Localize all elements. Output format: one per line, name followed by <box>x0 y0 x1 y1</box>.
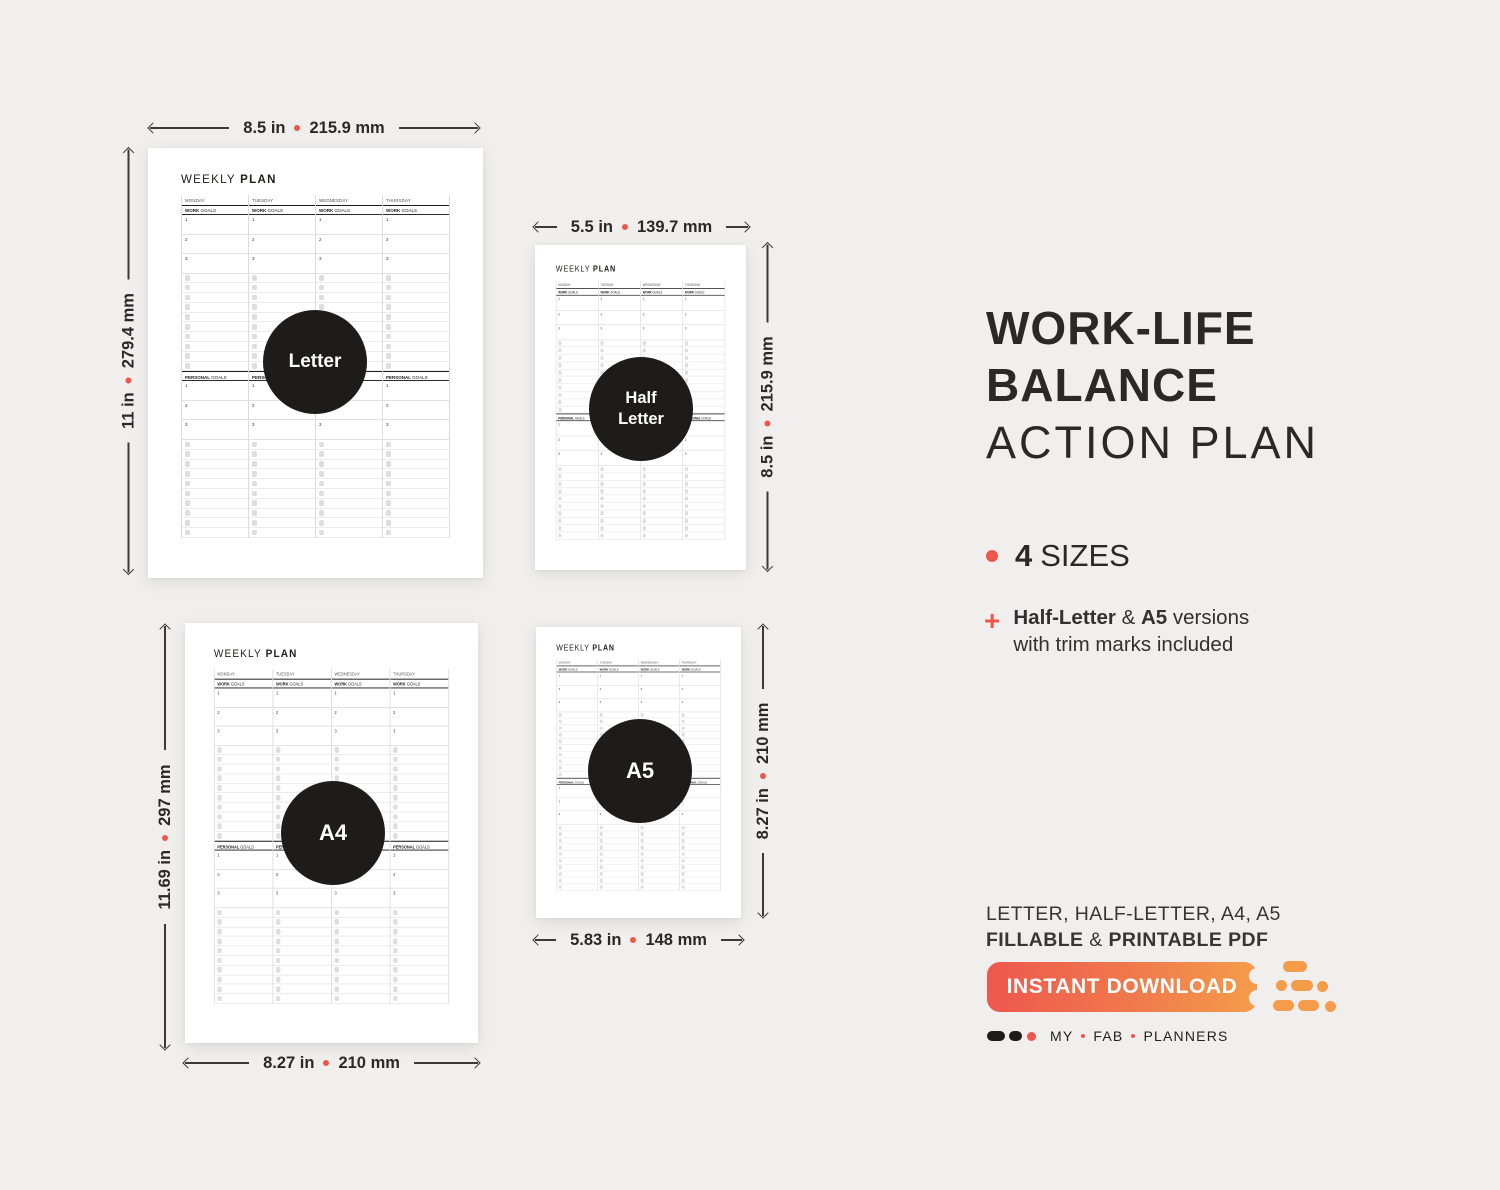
checkbox-icon <box>185 324 191 330</box>
planner-checklist-row <box>599 525 641 532</box>
planner-checklist-row <box>215 985 273 995</box>
planner-checklist-row <box>556 525 598 532</box>
planner-section-header-rest: GOALS <box>211 375 227 380</box>
checkbox-icon <box>252 510 258 516</box>
checkbox-icon <box>600 363 604 367</box>
planner-checklist-row <box>680 825 720 832</box>
checkbox-icon <box>185 285 191 291</box>
planner-section-header-bold: WORK <box>641 668 650 671</box>
planner-section-header: WORK GOALS <box>316 205 382 215</box>
checkbox-icon <box>558 489 562 493</box>
checkbox-icon <box>599 872 602 876</box>
checkbox-icon <box>319 510 325 516</box>
dot-separator-icon <box>323 1060 329 1066</box>
checkbox-icon <box>386 295 392 301</box>
planner-checklist-row <box>641 340 683 347</box>
planner-checklist-row <box>215 765 273 775</box>
planner-checklist-row <box>182 440 248 450</box>
checkbox-icon <box>558 766 561 770</box>
checkbox-icon <box>642 496 646 500</box>
checkbox-icon <box>252 324 258 330</box>
checkbox-icon <box>642 534 646 538</box>
checkbox-icon <box>185 295 191 301</box>
planner-checklist-row <box>557 831 597 838</box>
planner-checklist-row <box>332 946 390 956</box>
arrow-up-icon <box>767 245 769 323</box>
checkbox-icon <box>185 353 191 359</box>
size-badge-a5: A5 <box>588 719 692 823</box>
planner-checklist-row <box>556 369 598 376</box>
checkbox-icon <box>185 334 191 340</box>
planner-section-header-rest: GOALS <box>335 208 351 213</box>
planner-section-header-rest: GOALS <box>290 682 304 687</box>
checkbox-icon <box>558 341 562 345</box>
planner-checklist-row <box>683 362 725 369</box>
dimension-a4-width: 8.27 in 210 mm <box>185 1048 478 1078</box>
planner-checklist-row <box>182 322 248 332</box>
planner-checklist-row <box>599 488 641 495</box>
planner-checklist-row <box>641 495 683 502</box>
checkbox-icon <box>640 846 643 850</box>
checkbox-icon <box>558 773 561 777</box>
planner-goal-row: 1 <box>215 851 273 870</box>
planner-goal-row: 1 <box>599 296 641 311</box>
checkbox-icon <box>252 481 258 487</box>
planner-section-header: WORK GOALS <box>556 288 598 296</box>
planner-checklist-row <box>391 803 449 813</box>
planner-section-header: WORK GOALS <box>683 288 725 296</box>
planner-checklist-row <box>598 871 638 878</box>
planner-section-header: PERSONAL GOALS <box>215 841 273 851</box>
brand-word: MY <box>1050 1028 1073 1044</box>
arrow-up-icon <box>164 626 166 750</box>
planner-checklist-row <box>641 525 683 532</box>
planner-checklist-row <box>383 469 449 479</box>
checkbox-icon <box>386 481 392 487</box>
planner-checklist-row <box>680 851 720 858</box>
formats-info: LETTER, HALF-LETTER, A4, A5 FILLABLE & P… <box>986 901 1281 953</box>
checkbox-icon <box>681 879 684 883</box>
planner-goal-row: 3 <box>215 727 273 746</box>
planner-checklist-row <box>182 352 248 362</box>
planner-goal-row: 3 <box>383 420 449 440</box>
dot-separator-icon <box>760 773 766 779</box>
checkbox-icon <box>319 520 325 526</box>
planner-checklist-row <box>215 966 273 976</box>
checkbox-icon <box>334 996 339 1001</box>
checkbox-icon <box>319 295 325 301</box>
checkbox-icon <box>640 859 643 863</box>
planner-goal-row: 3 <box>249 254 315 274</box>
checkbox-icon <box>334 747 339 752</box>
dot-separator-icon <box>622 224 628 230</box>
planner-checklist-row <box>391 774 449 784</box>
planner-checklist-row <box>557 871 597 878</box>
planner-goal-row: 2 <box>680 798 720 811</box>
checkbox-icon <box>334 986 339 991</box>
planner-checklist-row <box>557 712 597 719</box>
planner-checklist-row <box>332 937 390 947</box>
planner-checklist-row <box>383 450 449 460</box>
checkbox-icon <box>558 865 561 869</box>
planner-goal-row: 2 <box>683 436 725 451</box>
planner-checklist-row <box>215 946 273 956</box>
checkbox-icon <box>252 471 258 477</box>
planner-section-header-rest: GOALS <box>698 780 707 783</box>
checkbox-icon <box>334 910 339 915</box>
planner-checklist-row <box>641 488 683 495</box>
checkbox-icon <box>685 504 689 508</box>
planner-goal-row: 1 <box>383 215 449 235</box>
checkbox-icon <box>386 471 392 477</box>
checkbox-icon <box>558 496 562 500</box>
planner-section-header-rest: GOALS <box>568 668 577 671</box>
dimension-half-letter-width: 5.5 in 139.7 mm <box>535 212 748 242</box>
planner-checklist-row <box>683 466 725 473</box>
checkbox-icon <box>681 713 684 717</box>
checkbox-icon <box>642 504 646 508</box>
feature-text: Half-Letter & A5 versions with trim mark… <box>1013 604 1249 658</box>
checkbox-icon <box>252 334 258 340</box>
planner-day-label: WEDNESDAY <box>639 659 679 666</box>
feature-line-2: with trim marks included <box>1013 631 1249 658</box>
planner-day-label: TUESDAY <box>273 669 331 679</box>
checkbox-icon <box>217 757 222 762</box>
checkbox-icon <box>681 865 684 869</box>
checkbox-icon <box>681 839 684 843</box>
planner-checklist-row <box>383 322 449 332</box>
planner-checklist-row <box>215 755 273 765</box>
checkbox-icon <box>600 496 604 500</box>
planner-checklist-row <box>680 712 720 719</box>
planner-checklist-row <box>249 450 315 460</box>
checkbox-icon <box>685 489 689 493</box>
planner-checklist-row <box>391 946 449 956</box>
planner-goal-row: 2 <box>683 310 725 325</box>
checkbox-icon <box>276 785 281 790</box>
planner-goal-row: 3 <box>680 699 720 712</box>
planner-checklist-row <box>599 340 641 347</box>
planner-checklist-row <box>641 510 683 517</box>
checkbox-icon <box>558 746 561 750</box>
checkbox-icon <box>642 511 646 515</box>
planner-day-label: WEDNESDAY <box>316 195 382 205</box>
planner-checklist-row <box>273 994 331 1004</box>
checkbox-icon <box>558 713 561 717</box>
planner-section-header-rest: GOALS <box>407 682 421 687</box>
checkbox-icon <box>640 852 643 856</box>
planner-checklist-row <box>182 342 248 352</box>
checkbox-icon <box>685 356 689 360</box>
planner-checklist-row <box>391 975 449 985</box>
planner-goal-row: 3 <box>273 889 331 908</box>
planner-checklist-row <box>215 803 273 813</box>
arrow-right-icon <box>726 226 748 228</box>
checkbox-icon <box>558 839 561 843</box>
planner-checklist-row <box>316 274 382 284</box>
checkbox-icon <box>640 879 643 883</box>
checkbox-icon <box>252 461 258 467</box>
planner-checklist-row <box>383 342 449 352</box>
checkbox-icon <box>558 467 562 471</box>
planner-checklist-row <box>598 825 638 832</box>
checkbox-icon <box>334 977 339 982</box>
checkbox-icon <box>681 846 684 850</box>
planner-checklist-row <box>316 518 382 528</box>
checkbox-icon <box>185 451 191 457</box>
arrow-up-icon <box>128 149 130 279</box>
planner-checklist-row <box>215 746 273 756</box>
planner-goal-row: 3 <box>557 699 597 712</box>
planner-checklist-row <box>599 480 641 487</box>
planner-goal-row: 2 <box>215 707 273 726</box>
planner-checklist-row <box>680 858 720 865</box>
dimension-inches: 8.5 in <box>758 436 777 478</box>
planner-checklist-row <box>556 532 598 539</box>
planner-goal-row: 1 <box>273 688 331 707</box>
checkbox-icon <box>217 996 222 1001</box>
arrow-down-icon <box>164 924 166 1048</box>
planner-goal-row: 2 <box>249 235 315 255</box>
checkbox-icon <box>640 872 643 876</box>
planner-goal-row: 3 <box>316 420 382 440</box>
planner-checklist-row <box>316 469 382 479</box>
checkbox-icon <box>393 967 398 972</box>
planner-checklist-row <box>391 765 449 775</box>
dimension-label: 8.27 in 210 mm <box>754 703 773 840</box>
checkbox-icon <box>393 795 398 800</box>
checkbox-icon <box>685 534 689 538</box>
planner-checklist-row <box>598 858 638 865</box>
checkbox-icon <box>640 865 643 869</box>
checkbox-icon <box>276 938 281 943</box>
checkbox-icon <box>393 814 398 819</box>
checkbox-icon <box>217 910 222 915</box>
checkbox-icon <box>319 471 325 477</box>
planner-checklist-row <box>215 813 273 823</box>
planner-checklist-row <box>391 956 449 966</box>
file-type-ampersand: & <box>1089 929 1102 951</box>
planner-day-label: MONDAY <box>557 659 597 666</box>
product-title: WORK-LIFE BALANCE ACTION PLAN <box>986 300 1319 471</box>
planner-section-header-bold: WORK <box>252 208 268 213</box>
planner-checklist-row <box>391 994 449 1004</box>
planner-goal-row: 1 <box>215 688 273 707</box>
checkbox-icon <box>334 948 339 953</box>
checkbox-icon <box>599 885 602 889</box>
planner-day-label: THURSDAY <box>683 281 725 289</box>
planner-checklist-row <box>316 293 382 303</box>
checkbox-icon <box>685 496 689 500</box>
checkbox-icon <box>319 442 325 448</box>
dimension-letter-width: 8.5 in 215.9 mm <box>150 113 478 143</box>
brand-dash-icon <box>1009 1031 1022 1041</box>
planner-checklist-row <box>316 450 382 460</box>
checkbox-icon <box>217 795 222 800</box>
checkbox-icon <box>558 832 561 836</box>
checkbox-icon <box>276 958 281 963</box>
planner-section-header: WORK GOALS <box>599 288 641 296</box>
checkbox-icon <box>558 753 561 757</box>
arrow-up-icon <box>762 626 764 689</box>
planner-checklist-row <box>273 765 331 775</box>
checkbox-icon <box>599 726 602 730</box>
checkbox-icon <box>252 530 258 536</box>
planner-checklist-row <box>383 293 449 303</box>
checkbox-icon <box>386 314 392 320</box>
planner-goal-row: 1 <box>680 672 720 685</box>
checkbox-icon <box>558 859 561 863</box>
planner-goal-row: 3 <box>391 889 449 908</box>
checkbox-icon <box>599 879 602 883</box>
planner-goal-row: 2 <box>316 235 382 255</box>
planner-checklist-row <box>641 480 683 487</box>
planner-checklist-row <box>556 503 598 510</box>
planner-checklist-row <box>383 303 449 313</box>
planner-checklist-row <box>680 831 720 838</box>
planner-checklist-row <box>680 732 720 739</box>
dimension-label: 5.83 in 148 mm <box>570 931 707 950</box>
planner-title: WEEKLY PLAN <box>556 645 721 653</box>
checkbox-icon <box>319 481 325 487</box>
dimension-mm: 148 mm <box>645 931 706 950</box>
planner-goal-row: 2 <box>556 310 598 325</box>
planner-goal-row: 3 <box>557 811 597 824</box>
plus-icon: + <box>984 607 1000 658</box>
dimension-half-letter-height: 8.5 in 215.9 mm <box>753 245 783 570</box>
checkbox-icon <box>600 519 604 523</box>
planner-section-header-rest: GOALS <box>348 682 362 687</box>
checkbox-icon <box>185 461 191 467</box>
brand-dash-icon <box>987 1031 1005 1041</box>
dot-separator-icon <box>765 421 771 427</box>
planner-goal-row: 2 <box>383 401 449 421</box>
checkbox-icon <box>600 534 604 538</box>
dimension-inches: 5.83 in <box>570 931 621 950</box>
checkbox-icon <box>558 720 561 724</box>
planner-checklist-row <box>332 918 390 928</box>
checkbox-icon <box>642 341 646 345</box>
checkbox-icon <box>685 519 689 523</box>
planner-checklist-row <box>273 966 331 976</box>
checkbox-icon <box>393 776 398 781</box>
size-badge-label: Letter <box>618 409 664 430</box>
arrow-down-icon <box>762 853 764 916</box>
checkbox-icon <box>276 929 281 934</box>
planner-checklist-row <box>182 499 248 509</box>
checkbox-icon <box>558 378 562 382</box>
checkbox-icon <box>642 482 646 486</box>
checkbox-icon <box>642 467 646 471</box>
checkbox-icon <box>252 500 258 506</box>
arrow-left-icon <box>535 939 556 941</box>
planner-title-bold: PLAN <box>592 645 614 653</box>
checkbox-icon <box>640 832 643 836</box>
planner-checklist-row <box>391 746 449 756</box>
arrow-down-icon <box>767 492 769 570</box>
checkbox-icon <box>217 967 222 972</box>
planner-checklist-row <box>249 440 315 450</box>
planner-goal-row: 1 <box>182 381 248 401</box>
checkbox-icon <box>558 879 561 883</box>
checkbox-icon <box>386 275 392 281</box>
planner-checklist-row <box>273 755 331 765</box>
planner-checklist-row <box>249 283 315 293</box>
planner-checklist-row <box>556 488 598 495</box>
speed-dot-icon <box>1325 1001 1336 1012</box>
checkbox-icon <box>558 740 561 744</box>
planner-checklist-row <box>641 473 683 480</box>
feature-bold-a5: A5 <box>1141 606 1167 629</box>
dimension-mm: 139.7 mm <box>637 218 712 237</box>
planner-checklist-row <box>383 518 449 528</box>
checkbox-icon <box>386 363 392 369</box>
planner-checklist-row <box>215 784 273 794</box>
planner-checklist-row <box>383 352 449 362</box>
planner-title-regular: WEEKLY <box>214 648 266 660</box>
checkbox-icon <box>685 371 689 375</box>
instant-download-button[interactable]: INSTANT DOWNLOAD <box>987 962 1257 1012</box>
checkbox-icon <box>276 986 281 991</box>
planner-section-header: WORK GOALS <box>557 666 597 673</box>
checkbox-icon <box>640 826 643 830</box>
planner-checklist-row <box>599 466 641 473</box>
checkbox-icon <box>386 353 392 359</box>
planner-checklist-row <box>383 440 449 450</box>
planner-checklist-row <box>316 460 382 470</box>
checkbox-icon <box>185 510 191 516</box>
planner-section-header-bold: WORK <box>643 290 653 294</box>
dimension-a5-height: 8.27 in 210 mm <box>748 626 778 916</box>
planner-checklist-row <box>556 377 598 384</box>
planner-checklist-row <box>683 495 725 502</box>
checkbox-icon <box>334 967 339 972</box>
planner-section-header-rest: GOALS <box>402 208 418 213</box>
speed-pill-icon <box>1273 1000 1294 1011</box>
planner-goal-row: 3 <box>182 254 248 274</box>
checkbox-icon <box>252 451 258 457</box>
checkbox-icon <box>681 859 684 863</box>
planner-section-header: WORK GOALS <box>680 666 720 673</box>
planner-checklist-row <box>598 851 638 858</box>
checkbox-icon <box>276 747 281 752</box>
product-listing-image: WEEKLY PLANMONDAYWORK GOALS123PERSONAL G… <box>0 0 1500 1190</box>
planner-checklist-row <box>332 755 390 765</box>
checkbox-icon <box>217 824 222 829</box>
checkbox-icon <box>386 344 392 350</box>
planner-checklist-row <box>391 784 449 794</box>
planner-checklist-row <box>383 362 449 372</box>
planner-title-bold: PLAN <box>266 648 298 660</box>
checkbox-icon <box>319 461 325 467</box>
planner-section-header-rest: GOALS <box>610 290 620 294</box>
planner-section-header-rest: GOALS <box>695 290 705 294</box>
checkbox-icon <box>681 852 684 856</box>
planner-checklist-row <box>683 480 725 487</box>
planner-section-header-rest: GOALS <box>652 290 662 294</box>
planner-checklist-row <box>215 822 273 832</box>
planner-checklist-row <box>556 518 598 525</box>
planner-checklist-row <box>249 469 315 479</box>
planner-section-header-bold: WORK <box>682 668 691 671</box>
checkbox-icon <box>600 511 604 515</box>
feature-bold-half-letter: Half-Letter <box>1013 606 1116 629</box>
planner-checklist-row <box>182 509 248 519</box>
planner-day-label: TUESDAY <box>598 659 638 666</box>
instant-download-label: INSTANT DOWNLOAD <box>1007 975 1238 999</box>
planner-checklist-row <box>391 927 449 937</box>
checkbox-icon <box>252 520 258 526</box>
